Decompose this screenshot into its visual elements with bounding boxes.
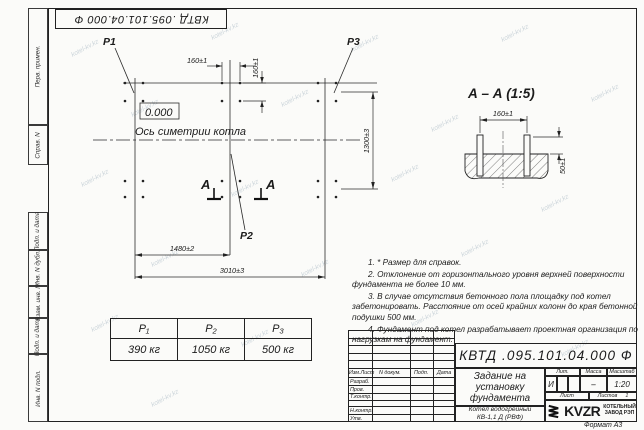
- dim-160-horizontal-text: 160±1: [187, 56, 207, 65]
- top-designation-box: КВТД .095.101.04.000 Ф: [55, 9, 227, 29]
- load-table-header-row: Р₁ Р₂ Р₃: [111, 319, 312, 339]
- col-data-label: Дата: [437, 370, 451, 376]
- margin-cell-vzam-inv: Взам. инв. N: [28, 286, 48, 318]
- section-title: А – А (1:5): [467, 86, 535, 101]
- sheet-label: Лист: [560, 393, 574, 399]
- margin-cell-sprav-n: Справ. N: [28, 125, 48, 165]
- scale-value: 1:20: [614, 380, 630, 389]
- load-table-header-p3: Р₃: [245, 319, 312, 339]
- margin-label: Перв. примен.: [35, 46, 42, 88]
- lit-header-cell: Лит.: [545, 368, 580, 376]
- sheets-cell: Листов 1: [589, 392, 637, 400]
- load-table-value-p2: 1050 кг: [178, 339, 245, 361]
- grid-line: [348, 414, 455, 415]
- row-tkontr-label: Т.контр.: [350, 394, 372, 400]
- doc-title-cell: Задание на установку фундамента: [455, 368, 545, 406]
- top-designation-text: КВТД .095.101.04.000 Ф: [74, 13, 209, 25]
- section-mark-a-right: А: [265, 177, 275, 192]
- grid-line: [348, 345, 455, 346]
- section-dim-160: [480, 116, 527, 133]
- grid-line: [410, 330, 411, 422]
- drawing-sheet: kotel-kv.kz kotel-kv.kz kotel-kv.kz kote…: [0, 0, 644, 430]
- foundation-plan-view: Р1 Р3 Р2 0.000 Ось симетрии котла 160±1 …: [85, 33, 385, 288]
- col-podp-label: Подп.: [414, 370, 428, 376]
- margin-cell-podp-data-1: Подп. и дата: [28, 212, 48, 250]
- margin-label: Инв. N подл.: [35, 370, 42, 407]
- designation-text: КВТД .095.101.04.000 Ф: [459, 348, 633, 363]
- doc-title-line2: установку: [476, 382, 525, 393]
- sheets-label: Листов: [598, 393, 618, 399]
- row-prov-label: Пров.: [350, 387, 364, 393]
- logo-text: KVZR: [564, 403, 600, 419]
- dim-1480-text: 1480±2: [170, 244, 194, 253]
- note-3: 3. В случае отсутствия бетонного пола пл…: [352, 292, 640, 324]
- margin-label: Справ. N: [35, 132, 42, 158]
- doc-title-line1: Задание на: [474, 371, 526, 382]
- designation-cell: КВТД .095.101.04.000 Ф: [455, 343, 637, 368]
- mass-value-cell: –: [580, 376, 607, 392]
- load-table: Р₁ Р₂ Р₃ 390 кг 1050 кг 500 кг: [110, 318, 312, 361]
- load-table-header-p2: Р₂: [178, 319, 245, 339]
- grid-line: [433, 330, 434, 422]
- dim-160-horizontal: [207, 62, 255, 81]
- margin-cell-perv-primen: Перв. примен.: [28, 8, 48, 125]
- company-logo-cell: KVZR КОТЕЛЬНЫЙ ЗАВОД РЭП: [545, 400, 637, 422]
- lit-label: Лит.: [556, 369, 569, 375]
- margin-cell-podp-data-2: Подп. и дата: [28, 318, 48, 354]
- dim-3010-text: 3010±3: [220, 266, 244, 275]
- load-table-header-p1: Р₁: [111, 319, 178, 339]
- logo-caption: КОТЕЛЬНЫЙ ЗАВОД РЭП: [603, 405, 636, 416]
- margin-label: Подп. и дата: [35, 211, 42, 250]
- sheets-value: 1: [625, 393, 628, 399]
- grid-line: [348, 368, 455, 369]
- note-2: 2. Отклонение от горизонтального уровня …: [352, 270, 640, 291]
- scale-header-cell: Масштаб: [607, 368, 637, 376]
- grid-line: [348, 360, 455, 361]
- margin-cell-inv-podl: Инв. N подл.: [28, 354, 48, 422]
- doc-title-line3: фундамента: [470, 393, 530, 404]
- scale-value-cell: 1:20: [607, 376, 637, 392]
- row-utv-label: Утв.: [350, 416, 362, 422]
- title-block: Изм.Лист N докум. Подп. Дата Разраб. Про…: [348, 330, 637, 422]
- row-razrab-label: Разраб.: [350, 379, 370, 385]
- product-line1: Котел водогрейный: [469, 406, 532, 414]
- logo-caption-line2: ЗАВОД РЭП: [603, 411, 636, 417]
- scale-label: Масштаб: [609, 369, 634, 375]
- mass-label: Масса: [586, 369, 602, 375]
- lit-empty-cell-1: [557, 376, 568, 392]
- margin-cell-inv-dubl: Инв. N дубл.: [28, 250, 48, 286]
- section-a-a-view: А – А (1:5) 160±1 50±1: [438, 76, 644, 201]
- mass-value: –: [591, 380, 595, 389]
- col-izm-list-label: Изм.Лист: [349, 370, 374, 376]
- section-mark-a-left: А: [200, 177, 210, 192]
- load-point-p3-label: Р3: [347, 36, 360, 48]
- load-table-value-p1: 390 кг: [111, 339, 178, 361]
- margin-label: Подп. и дата: [35, 316, 42, 355]
- lit-value: И: [548, 380, 554, 389]
- product-line2: КВ-1,1 Д (РВФ): [477, 414, 523, 422]
- section-dim-160-text: 160±1: [493, 109, 513, 118]
- load-table-value-row: 390 кг 1050 кг 500 кг: [111, 339, 312, 361]
- lit-empty-cell-2: [568, 376, 580, 392]
- dim-1300: [341, 92, 378, 189]
- grid-line: [348, 400, 455, 401]
- load-table-value-p3: 500 кг: [245, 339, 312, 361]
- col-n-dokum-label: N докум.: [379, 370, 401, 376]
- load-point-leaders: [115, 48, 353, 230]
- elevation-label: 0.000: [145, 107, 173, 119]
- load-point-p2-label: Р2: [240, 230, 253, 242]
- row-nkontr-label: Н.контр.: [350, 408, 373, 414]
- dim-1480: [135, 253, 230, 257]
- note-1: 1. * Размер для справок.: [352, 258, 640, 269]
- boiler-axis-label: Ось симетрии котла: [135, 126, 246, 138]
- spring-coil-icon: [546, 404, 561, 419]
- dim-160-vertical-text: 160±1: [251, 58, 260, 78]
- mass-header-cell: Масса: [580, 368, 607, 376]
- dim-1300-text: 1300±3: [362, 129, 371, 153]
- dim-3010: [135, 275, 325, 279]
- product-cell: Котел водогрейный КВ-1,1 Д (РВФ): [455, 406, 545, 422]
- grid-line: [348, 353, 455, 354]
- section-dim-50-text: 50±1: [558, 158, 567, 174]
- margin-label: Взам. инв. N: [35, 284, 42, 321]
- grid-line: [348, 338, 455, 339]
- load-point-p1-label: Р1: [103, 36, 116, 48]
- lit-value-cell: И: [545, 376, 557, 392]
- format-label: Формат А3: [584, 422, 622, 429]
- sheet-cell: Лист: [545, 392, 589, 400]
- margin-label: Инв. N дубл.: [35, 250, 42, 286]
